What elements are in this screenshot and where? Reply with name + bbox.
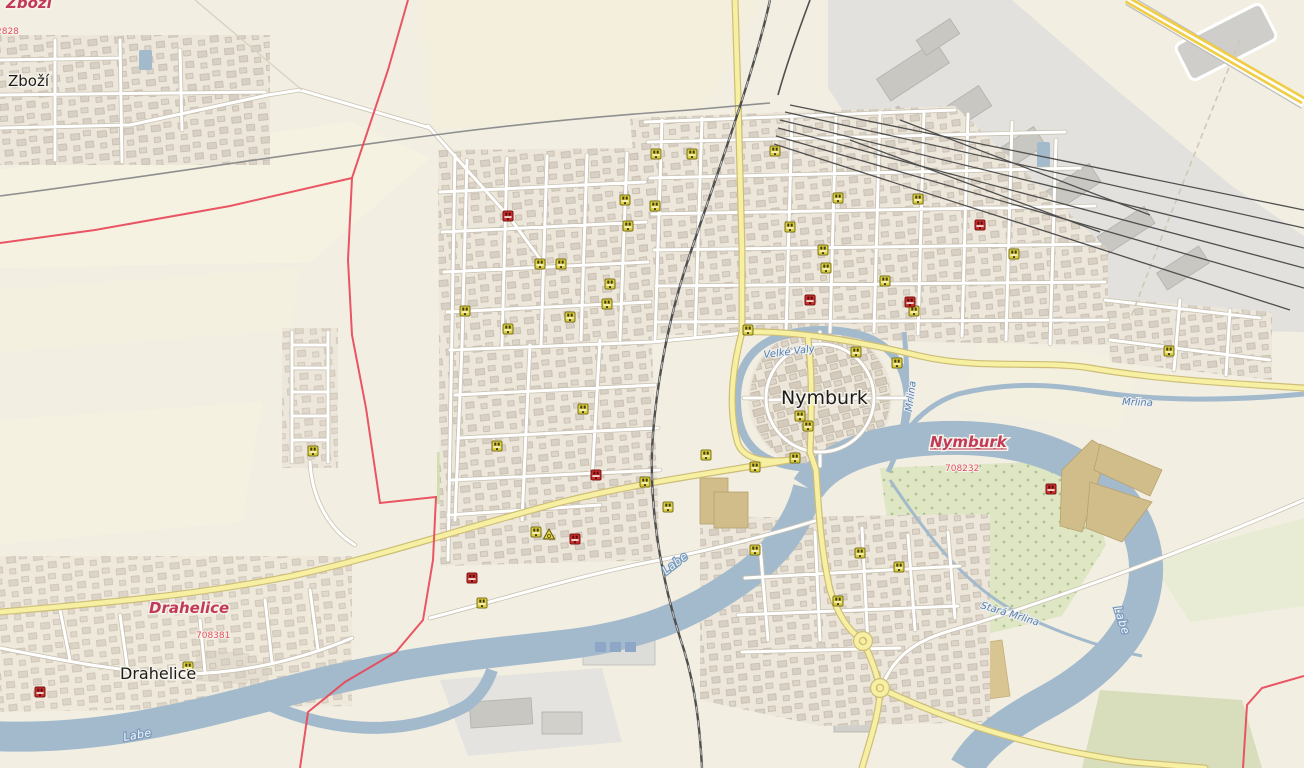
admin-label-nymburk: Nymburk [930,433,1008,451]
admin-label-zbozi: Zboží [5,0,55,12]
poi-marker-yellow-icon[interactable] [535,259,545,269]
poi-marker-yellow-icon[interactable] [701,450,711,460]
poi-marker-yellow-icon[interactable] [833,596,843,606]
poi-marker-yellow-icon[interactable] [803,421,813,431]
poi-marker-yellow-icon[interactable] [651,149,661,159]
poi-marker-yellow-icon[interactable] [640,477,650,487]
poi-marker-red-icon[interactable] [805,295,815,305]
poi-marker-yellow-icon[interactable] [477,598,487,608]
poi-marker-yellow-icon[interactable] [620,195,630,205]
poi-marker-yellow-icon[interactable] [790,453,800,463]
map-canvas[interactable]: Zboží2828ZbožíNymburkNymburk708232Drahel… [0,0,1304,768]
poi-marker-yellow-icon[interactable] [821,263,831,273]
poi-marker-yellow-icon[interactable] [687,149,697,159]
poi-marker-red-icon[interactable] [570,534,580,544]
poi-marker-yellow-icon[interactable] [795,411,805,421]
city-label-nymburk: Nymburk [781,387,868,409]
poi-marker-red-icon[interactable] [503,211,513,221]
poi-marker-yellow-icon[interactable] [578,404,588,414]
admin-code-708381: 708381 [196,631,230,641]
poi-marker-yellow-icon[interactable] [308,446,318,456]
poi-marker-yellow-icon[interactable] [623,221,633,231]
poi-marker-yellow-icon[interactable] [743,325,753,335]
poi-marker-yellow-icon[interactable] [503,324,513,334]
admin-label-drahelice: Drahelice [149,599,229,617]
poi-marker-red-icon[interactable] [591,470,601,480]
admin-code-708232: 708232 [945,464,979,474]
poi-marker-yellow-icon[interactable] [851,347,861,357]
poi-marker-yellow-icon[interactable] [833,193,843,203]
poi-marker-yellow-icon[interactable] [565,312,575,322]
poi-marker-yellow-icon[interactable] [1009,249,1019,259]
poi-marker-yellow-icon[interactable] [492,441,502,451]
town-label-zbozi: Zboží [8,72,50,90]
poi-marker-yellow-icon[interactable] [750,462,760,472]
poi-marker-yellow-icon[interactable] [663,502,673,512]
poi-marker-yellow-icon[interactable] [894,562,904,572]
poi-marker-yellow-icon[interactable] [785,222,795,232]
poi-marker-yellow-icon[interactable] [750,545,760,555]
poi-marker-yellow-icon[interactable] [531,527,541,537]
poi-marker-red-icon[interactable] [975,220,985,230]
poi-marker-yellow-icon[interactable] [913,194,923,204]
poi-marker-yellow-icon[interactable] [1164,346,1174,356]
poi-marker-yellow-icon[interactable] [855,548,865,558]
poi-marker-yellow-icon[interactable] [892,358,902,368]
poi-marker-yellow-icon[interactable] [818,245,828,255]
poi-marker-yellow-icon[interactable] [880,276,890,286]
poi-marker-yellow-icon[interactable] [650,201,660,211]
admin-code-2828: 2828 [0,27,19,37]
poi-marker-yellow-icon[interactable] [556,259,566,269]
poi-marker-red-icon[interactable] [905,297,915,307]
stream-label-mrlina: Mrlina [1122,397,1153,409]
poi-marker-red-icon[interactable] [35,687,45,697]
poi-marker-red-icon[interactable] [1046,484,1056,494]
poi-marker-yellow-icon[interactable] [602,299,612,309]
poi-marker-yellow-icon[interactable] [770,146,780,156]
poi-marker-red-icon[interactable] [467,573,477,583]
town-label-drahelice: Drahelice [120,664,196,683]
poi-marker-yellow-icon[interactable] [460,306,470,316]
poi-marker-yellow-icon[interactable] [605,279,615,289]
